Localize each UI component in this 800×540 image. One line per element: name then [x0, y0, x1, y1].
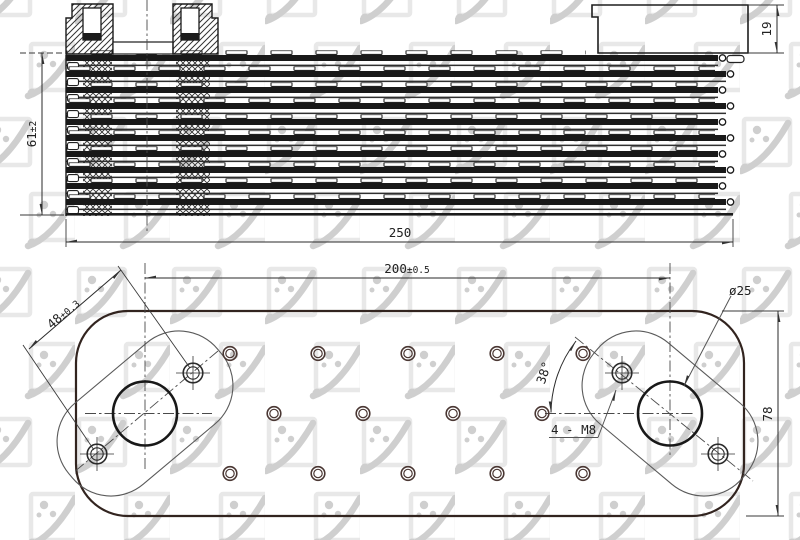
bottom-plate — [66, 213, 733, 216]
oil-cooler-drawing: 19 61±2 250 — [0, 0, 800, 540]
dim-overall-length-label: 250 — [389, 225, 412, 240]
mounting-boss-right — [173, 4, 218, 54]
plate-end-cap — [727, 56, 744, 63]
dim-body-width-label: 78 — [760, 406, 775, 421]
dim-boss-height-label: 19 — [759, 21, 774, 36]
port-diameter-label: ø25 — [729, 283, 752, 298]
thread-callout-label: 4 - M8 — [551, 422, 596, 437]
boss-base — [113, 42, 173, 54]
technical-drawing-page: 19 61±2 250 — [0, 0, 800, 540]
mounting-boss-left — [66, 4, 113, 54]
